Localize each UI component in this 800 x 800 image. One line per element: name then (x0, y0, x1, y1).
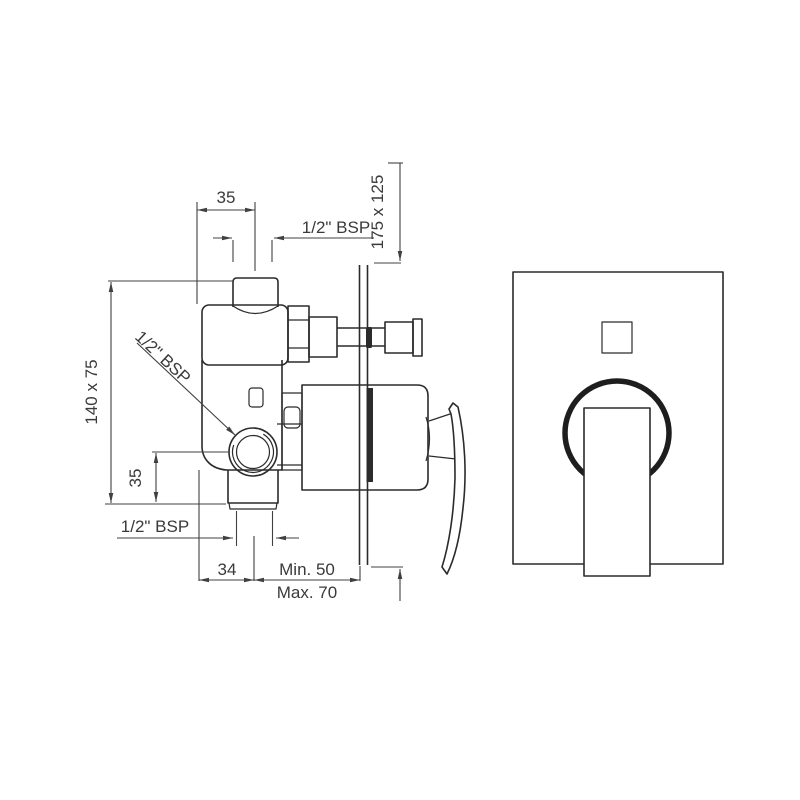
side-view-dimensions: 35 1/2" BSP 175 x 125 140 x 75 1/2" BSP … (82, 163, 403, 602)
dim-body-size: 140 x 75 (82, 282, 111, 503)
dim-bottom-port-label: 1/2" BSP (121, 517, 189, 536)
bottom-port-cap (229, 503, 277, 509)
technical-drawing-canvas: 35 1/2" BSP 175 x 125 140 x 75 1/2" BSP … (0, 0, 800, 800)
bottom-port (228, 470, 278, 503)
dim-side-port: 1/2" BSP (131, 327, 235, 435)
dim-top-offset: 35 (197, 188, 255, 210)
dim-side-port-offset-label: 35 (126, 469, 145, 488)
body-tab (249, 388, 263, 407)
dim-top-offset-label: 35 (217, 188, 236, 207)
side-port-inner (237, 436, 270, 469)
side-port-thread-arc (232, 434, 273, 472)
wall-plate-edge (360, 265, 368, 565)
cartridge-housing (302, 385, 428, 490)
spindle-wall-flange (366, 327, 372, 348)
connector-tab (284, 407, 300, 428)
side-view (202, 265, 465, 574)
hex-nut (288, 306, 309, 362)
valve-body (202, 278, 302, 509)
dim-bottom-port: 1/2" BSP (117, 517, 299, 538)
dim-side-port-label: 1/2" BSP (131, 327, 194, 388)
connector-block (282, 393, 302, 470)
lever-blade-side (442, 403, 465, 574)
top-port-skirt (233, 306, 278, 314)
dim-depth-max-label: Max. 70 (277, 583, 337, 602)
adapter-nut (309, 317, 337, 357)
front-view (513, 272, 723, 576)
dim-plate-size-label: 175 x 125 (368, 175, 387, 250)
cartridge-and-lever (302, 385, 465, 574)
diverter-knob (385, 322, 413, 353)
dim-top-port-label: 1/2" BSP (302, 218, 370, 237)
dim-plate-size: 175 x 125 (368, 163, 400, 601)
dim-top-port: 1/2" BSP (213, 218, 374, 238)
dim-body-size-label: 140 x 75 (82, 359, 101, 424)
diverter-knob-cap (413, 319, 422, 356)
dim-side-port-offset: 35 (126, 453, 156, 502)
lever-handle-front (584, 408, 650, 576)
dim-bottom-offset-label: 34 (218, 560, 237, 579)
body-main (202, 305, 288, 365)
diverter-spindle (288, 306, 422, 362)
diverter-window (602, 322, 632, 353)
drawing-svg: 35 1/2" BSP 175 x 125 140 x 75 1/2" BSP … (0, 0, 800, 800)
dim-bottom-offset: 34 (199, 560, 254, 580)
housing-wall-flange (367, 388, 374, 482)
dim-depth-min-label: Min. 50 (279, 560, 335, 579)
top-port (233, 278, 278, 307)
dim-depth: Min. 50 Max. 70 (254, 560, 360, 602)
